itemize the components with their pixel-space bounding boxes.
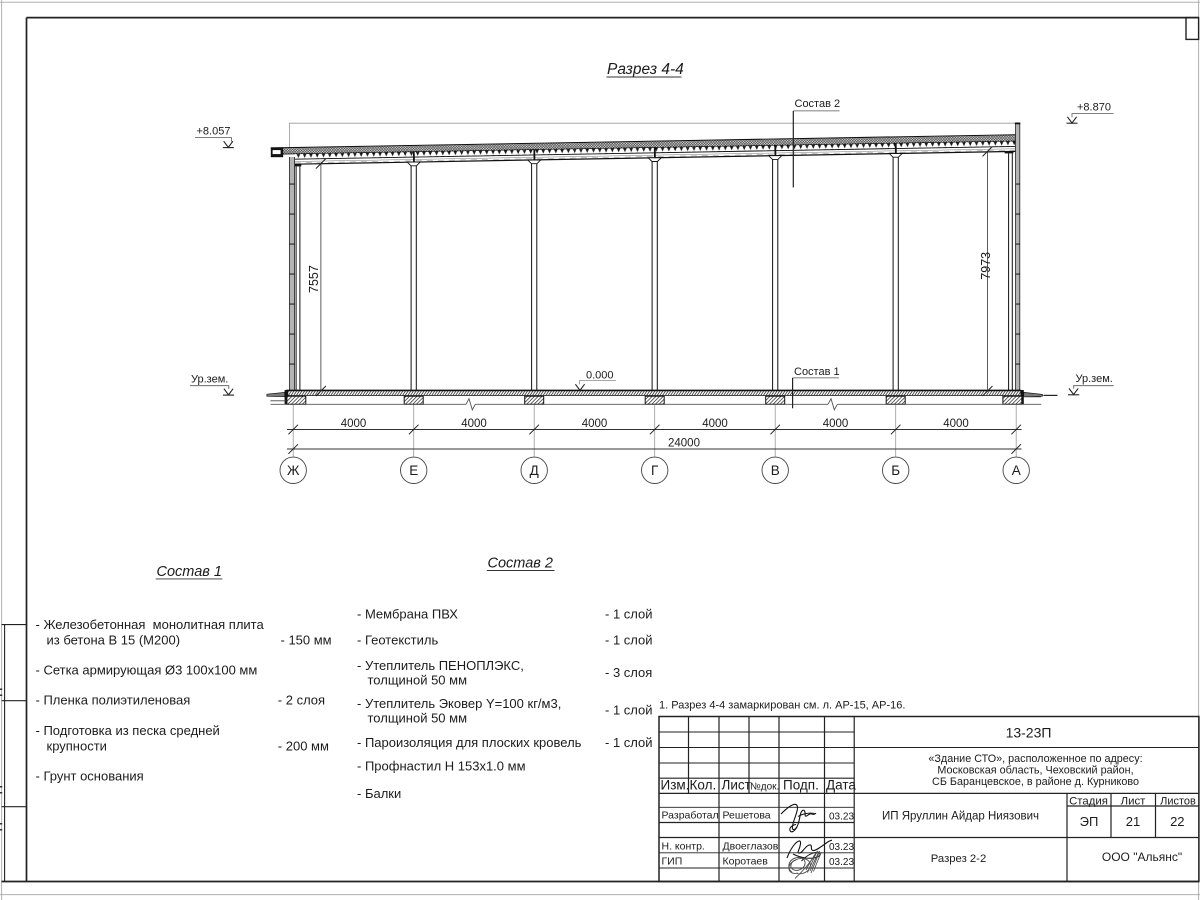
svg-text:СБ Баранцевское, в районе д. К: СБ Баранцевское, в районе д. Курниково	[932, 776, 1139, 788]
svg-text:ЭП: ЭП	[1080, 814, 1099, 829]
svg-text:Б: Б	[891, 463, 900, 478]
svg-text:Коротаев: Коротаев	[723, 855, 769, 867]
svg-text:- 2 слоя: - 2 слоя	[278, 692, 325, 707]
svg-text:- Пароизоляция для плоских кро: - Пароизоляция для плоских кровель	[357, 735, 582, 750]
svg-text:Изм.: Изм.	[661, 778, 690, 793]
svg-text:- 1 слой: - 1 слой	[605, 703, 653, 718]
svg-text:толщиной 50 мм: толщиной 50 мм	[368, 710, 468, 725]
svg-text:Состав 1: Состав 1	[157, 564, 222, 580]
svg-text:+8.870: +8.870	[1077, 102, 1111, 114]
svg-text:+8.057: +8.057	[197, 126, 231, 138]
svg-text:- 150 мм: - 150 мм	[281, 632, 332, 647]
svg-text:- Сетка армирующая Ø3 100х100: - Сетка армирующая Ø3 100х100 мм	[36, 663, 258, 678]
svg-text:- 200 мм: - 200 мм	[278, 738, 329, 753]
svg-text:- Профнастил Н 153х1.0 мм: - Профнастил Н 153х1.0 мм	[357, 759, 526, 774]
svg-text:ООО "Альянс": ООО "Альянс"	[1102, 850, 1182, 864]
svg-text:- Балки: - Балки	[357, 786, 401, 801]
svg-text:Ур.зем.: Ур.зем.	[191, 373, 228, 385]
svg-text:4000: 4000	[823, 418, 849, 430]
svg-text:4000: 4000	[702, 418, 728, 430]
svg-text:Разработал: Разработал	[662, 809, 719, 821]
svg-text:Н. контр.: Н. контр.	[662, 840, 705, 852]
svg-text:В: В	[771, 463, 780, 478]
svg-text:- Пленка полиэтиленовая: - Пленка полиэтиленовая	[36, 692, 191, 707]
svg-text:- Грунт основания: - Грунт основания	[36, 769, 144, 784]
svg-text:4000: 4000	[461, 418, 487, 430]
svg-text:0.000: 0.000	[586, 369, 614, 381]
svg-text:1. Разрез 4-4 замаркирован см.: 1. Разрез 4-4 замаркирован см. л. АР-15,…	[659, 699, 905, 711]
svg-text:4000: 4000	[341, 418, 367, 430]
svg-text:- 1 слой: - 1 слой	[605, 632, 653, 647]
svg-text:Состав 2: Состав 2	[795, 98, 841, 110]
svg-text:А: А	[1012, 463, 1021, 478]
svg-text:- Мембрана ПВХ: - Мембрана ПВХ	[357, 606, 458, 621]
svg-text:Подп.: Подп.	[783, 778, 819, 793]
svg-text:Е: Е	[409, 463, 418, 478]
svg-text:Лист: Лист	[722, 778, 751, 793]
svg-text:7973: 7973	[979, 252, 993, 280]
svg-text:ИП Яруллин Айдар Ниязович: ИП Яруллин Айдар Ниязович	[882, 811, 1039, 823]
svg-text:- 1 слой: - 1 слой	[605, 606, 653, 621]
svg-text:Г: Г	[651, 463, 659, 478]
svg-text:Стадия: Стадия	[1069, 796, 1108, 808]
svg-text:21: 21	[1126, 814, 1140, 829]
svg-text:толщиной 50 мм: толщиной 50 мм	[368, 672, 468, 687]
svg-text:24000: 24000	[668, 437, 700, 449]
svg-text:№док.: №док.	[750, 782, 779, 793]
svg-text:03.23: 03.23	[829, 842, 854, 853]
svg-text:Состав 1: Состав 1	[794, 366, 840, 378]
svg-text:03.23: 03.23	[829, 857, 854, 868]
svg-text:Состав 2: Состав 2	[488, 556, 553, 572]
svg-text:03.23: 03.23	[829, 811, 854, 822]
svg-text:Московская область, Чеховский: Московская область, Чеховский район,	[937, 765, 1133, 777]
svg-text:Кол.: Кол.	[690, 778, 717, 793]
svg-text:из бетона В 15 (М200): из бетона В 15 (М200)	[47, 632, 181, 647]
svg-text:«Здание СТО», расположенное по: «Здание СТО», расположенное по адресу:	[928, 753, 1142, 765]
svg-text:- Железобетонная монолитная п: - Железобетонная монолитная плита	[36, 617, 265, 632]
svg-text:Ж: Ж	[287, 463, 300, 478]
svg-text:4000: 4000	[943, 418, 969, 430]
svg-text:Ур.зем.: Ур.зем.	[1076, 373, 1113, 385]
svg-text:- Утеплитель ПЕНОПЛЭКС,: - Утеплитель ПЕНОПЛЭКС,	[357, 658, 524, 673]
svg-text:- Геотекстиль: - Геотекстиль	[357, 632, 438, 647]
svg-text:7557: 7557	[307, 265, 321, 293]
svg-text:4000: 4000	[582, 418, 608, 430]
svg-text:Листов: Листов	[1160, 796, 1196, 808]
svg-text:крупности: крупности	[47, 738, 107, 753]
svg-text:Лист: Лист	[1121, 796, 1147, 808]
svg-text:- 3 слоя: - 3 слоя	[605, 665, 652, 680]
svg-text:Д: Д	[530, 463, 539, 478]
svg-text:- Утеплитель Эковер Y=100 кг/м: - Утеплитель Эковер Y=100 кг/м3,	[357, 696, 561, 711]
svg-text:Дата: Дата	[826, 778, 856, 793]
svg-text:ГИП: ГИП	[662, 855, 683, 867]
svg-text:Решетова: Решетова	[723, 809, 771, 821]
svg-text:22: 22	[1170, 814, 1184, 829]
svg-text:- Подготовка из песка средней: - Подготовка из песка средней	[36, 723, 220, 738]
svg-text:Разрез 4-4: Разрез 4-4	[607, 61, 684, 78]
svg-text:- 1 слой: - 1 слой	[605, 735, 653, 750]
svg-text:Двоеглазов: Двоеглазов	[723, 840, 779, 852]
svg-text:Разрез 2-2: Разрез 2-2	[931, 853, 986, 865]
svg-text:13-23П: 13-23П	[1006, 724, 1052, 740]
